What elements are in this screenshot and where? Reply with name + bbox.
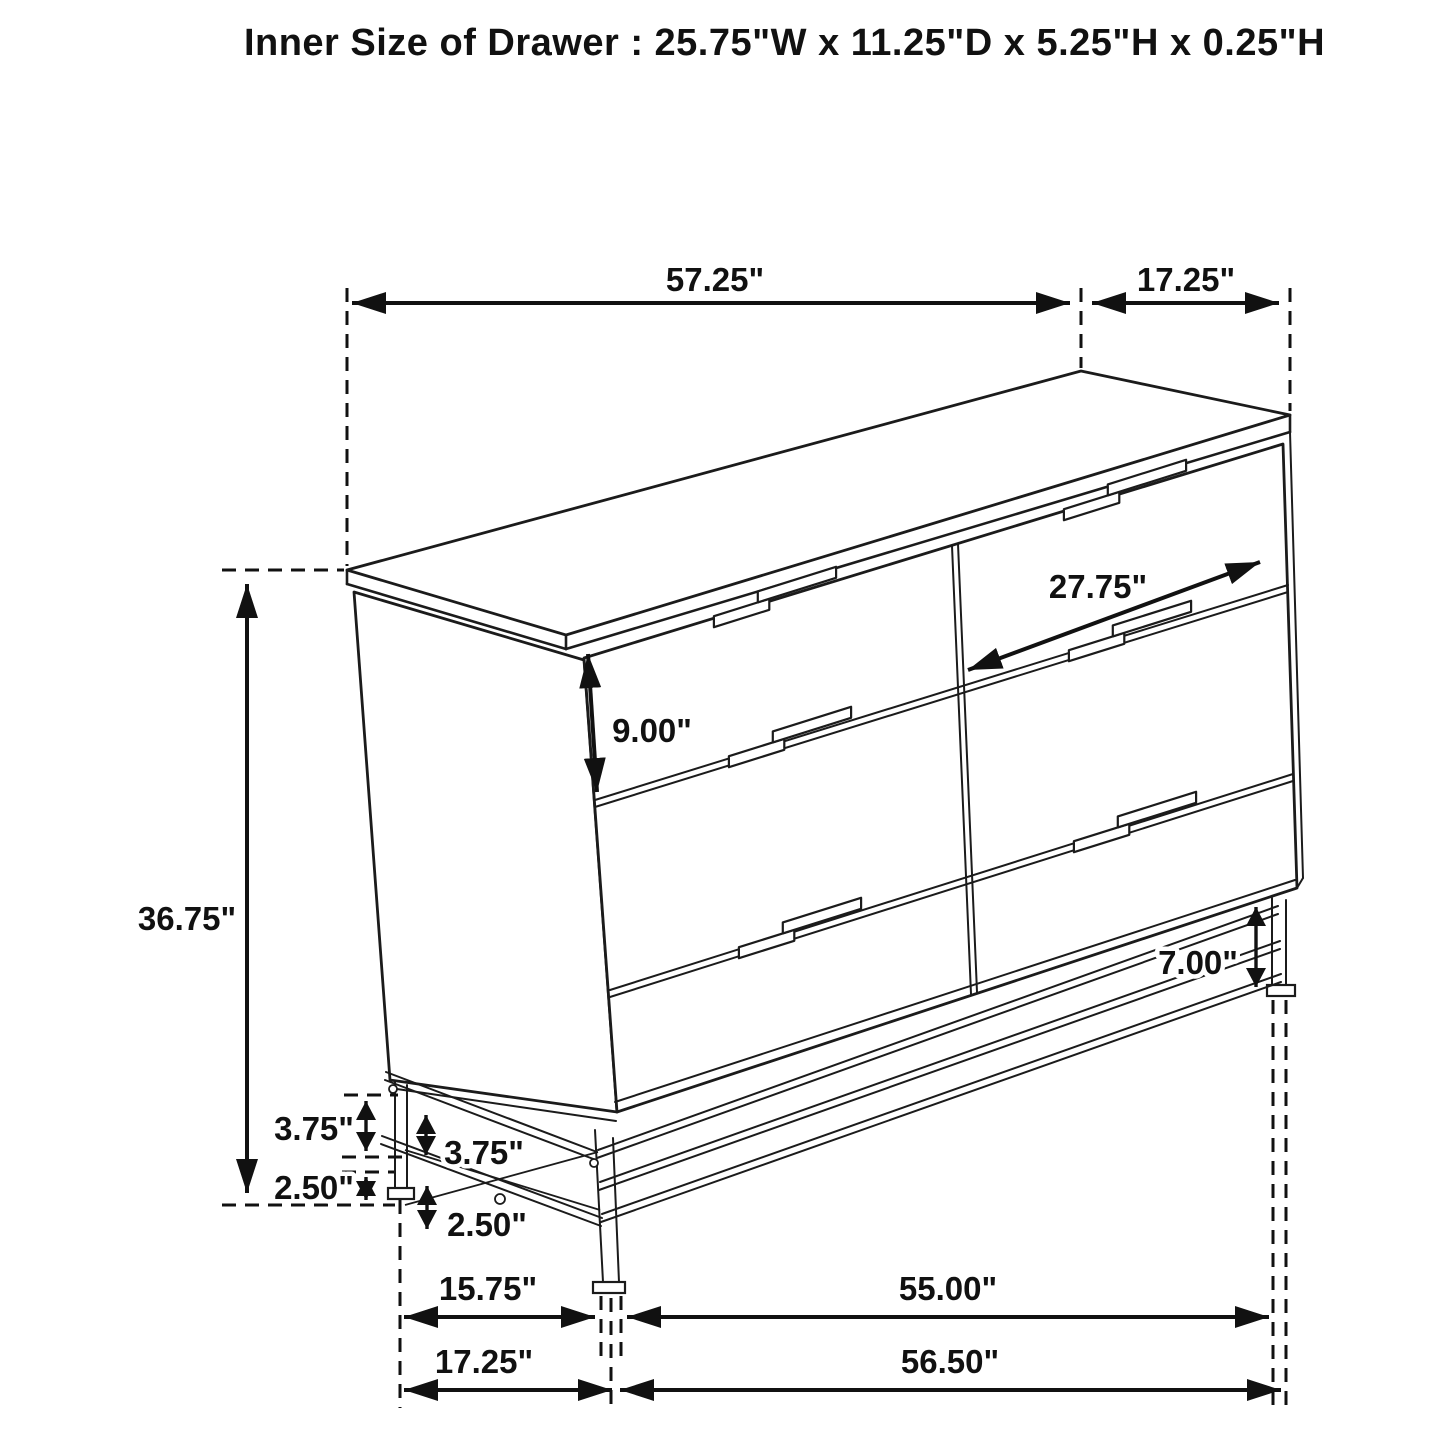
base-lower-gap-left-label: 2.50": [274, 1169, 354, 1206]
foot-depth-outer-label: 17.25": [435, 1343, 533, 1380]
base-upper-gap-left-label: 3.75": [274, 1110, 354, 1147]
dimension-base-lower-gap-left: 2.50": [274, 1169, 394, 1206]
back-left-foot: [388, 1188, 414, 1199]
dresser-dimension-diagram: 57.25" 17.25" 27.75" 9.00" 36.75": [0, 0, 1445, 1445]
front-right-foot: [1267, 985, 1295, 996]
dimension-overall-height: 36.75": [138, 570, 395, 1205]
screw-hole: [495, 1194, 505, 1204]
top-width-label: 57.25": [666, 261, 764, 298]
foot-width-outer-label: 56.50": [901, 1343, 999, 1380]
left-side-panel: [354, 592, 617, 1121]
base-lower-gap-side-label: 2.50": [447, 1206, 527, 1243]
drawer-width-label: 27.75": [1049, 568, 1147, 605]
screw-hole: [590, 1159, 598, 1167]
dimension-base-upper-gap-side: 3.75": [426, 1115, 524, 1171]
foot-width-inner-label: 55.00": [899, 1270, 997, 1307]
drawer-height-label: 9.00": [612, 712, 692, 749]
top-depth-label: 17.25": [1137, 261, 1235, 298]
leg-height-label: 7.00": [1158, 944, 1238, 981]
screw-hole: [389, 1085, 397, 1093]
foot-depth-inner-label: 15.75": [439, 1270, 537, 1307]
base-upper-gap-side-label: 3.75": [444, 1134, 524, 1171]
dimension-foot-depth-outer: 17.25": [404, 1343, 612, 1390]
dimension-foot-depth-inner: 15.75": [404, 1270, 595, 1317]
dimension-base-upper-gap-left: 3.75": [274, 1095, 402, 1157]
front-left-foot: [593, 1282, 625, 1293]
dimension-foot-width-outer: 56.50": [620, 1343, 1281, 1390]
overall-height-label: 36.75": [138, 900, 236, 937]
diagram-canvas: Inner Size of Drawer : 25.75"W x 11.25"D…: [0, 0, 1445, 1445]
dimension-foot-width-inner: 55.00": [627, 1270, 1269, 1317]
